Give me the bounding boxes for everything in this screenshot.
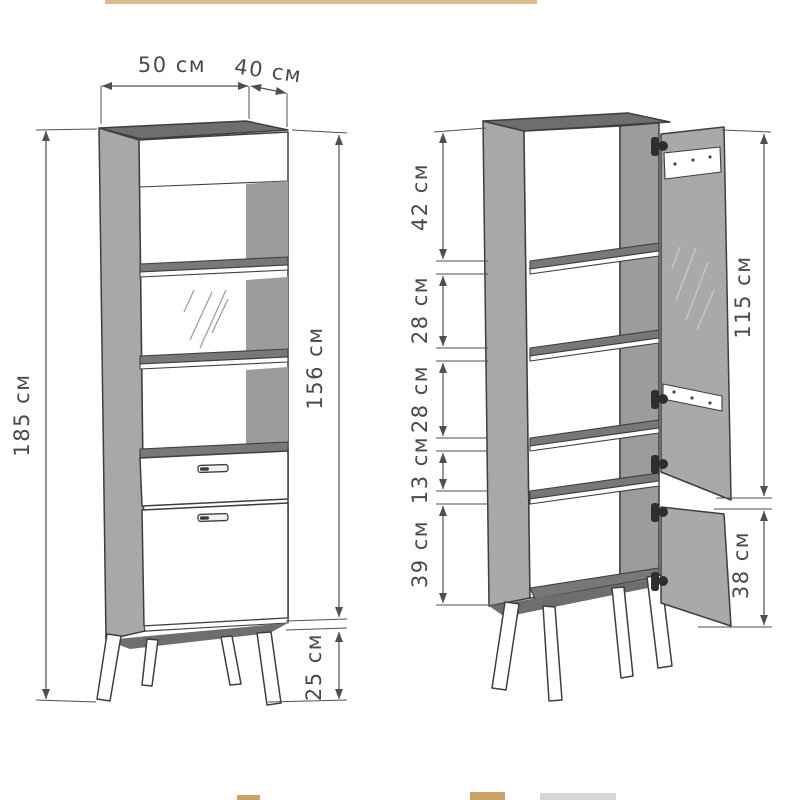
dim-label-overall-height: 185 см xyxy=(10,373,34,456)
dim-overall-height: 185 см xyxy=(10,129,97,702)
furniture-dimension-drawing: 50 см 40 см 185 см 156 см 25 см xyxy=(0,0,800,800)
dim-label-shelf-1: 42 см xyxy=(408,163,432,231)
leg xyxy=(492,602,519,690)
dim-label-shelf-5: 39 см xyxy=(408,520,432,588)
leg xyxy=(612,587,633,678)
cropped-thumbnail-bottom-left xyxy=(237,795,260,800)
cropped-image-strip-top xyxy=(105,0,537,4)
closed-cabinet-view: 50 см 40 см 185 см 156 см 25 см xyxy=(10,53,347,705)
dim-label-shelf-4: 13 см xyxy=(408,436,432,504)
drawer-front xyxy=(140,451,288,506)
technical-drawing-canvas: 50 см 40 см 185 см 156 см 25 см xyxy=(0,0,800,800)
dim-label-glass-door: 115 см xyxy=(731,255,755,338)
dim-label-shelf-3: 28 см xyxy=(408,365,432,433)
side-panel-left xyxy=(483,121,530,606)
lower-door-open xyxy=(661,507,731,626)
dim-label-shelf-2: 28 см xyxy=(408,276,432,344)
dim-label-top-width: 50 см xyxy=(138,53,206,77)
dim-label-legs-height: 25 см xyxy=(302,633,326,701)
cropped-thumbnail-bottom-middle xyxy=(470,792,505,800)
leg xyxy=(257,632,281,705)
interior-back-panel xyxy=(524,126,620,598)
inner-side-panel xyxy=(246,181,288,264)
leg xyxy=(97,634,121,701)
dim-label-top-depth: 40 см xyxy=(233,54,304,87)
dim-carcass-height: 156 см xyxy=(286,130,347,621)
dim-label-carcass-height: 156 см xyxy=(303,326,327,409)
side-panel-left xyxy=(99,128,145,640)
glass-door-open xyxy=(661,127,731,500)
door-handle xyxy=(198,513,228,521)
cropped-thumbnail-bottom-right xyxy=(540,793,616,800)
dim-top-width: 50 см xyxy=(101,53,249,124)
dim-top-depth: 40 см xyxy=(233,54,304,127)
inner-side-panel xyxy=(246,277,288,353)
dim-shelf-chain: 42 см 28 см 28 см 13 см 39 см xyxy=(408,128,488,605)
drawer-handle xyxy=(198,464,228,472)
open-cabinet-view: 42 см 28 см 28 см 13 см 39 см 115 см 38 … xyxy=(408,113,772,701)
inner-side-panel xyxy=(246,367,288,446)
dim-label-lower-door: 38 см xyxy=(729,531,753,599)
leg xyxy=(543,606,562,701)
leg xyxy=(221,636,241,685)
